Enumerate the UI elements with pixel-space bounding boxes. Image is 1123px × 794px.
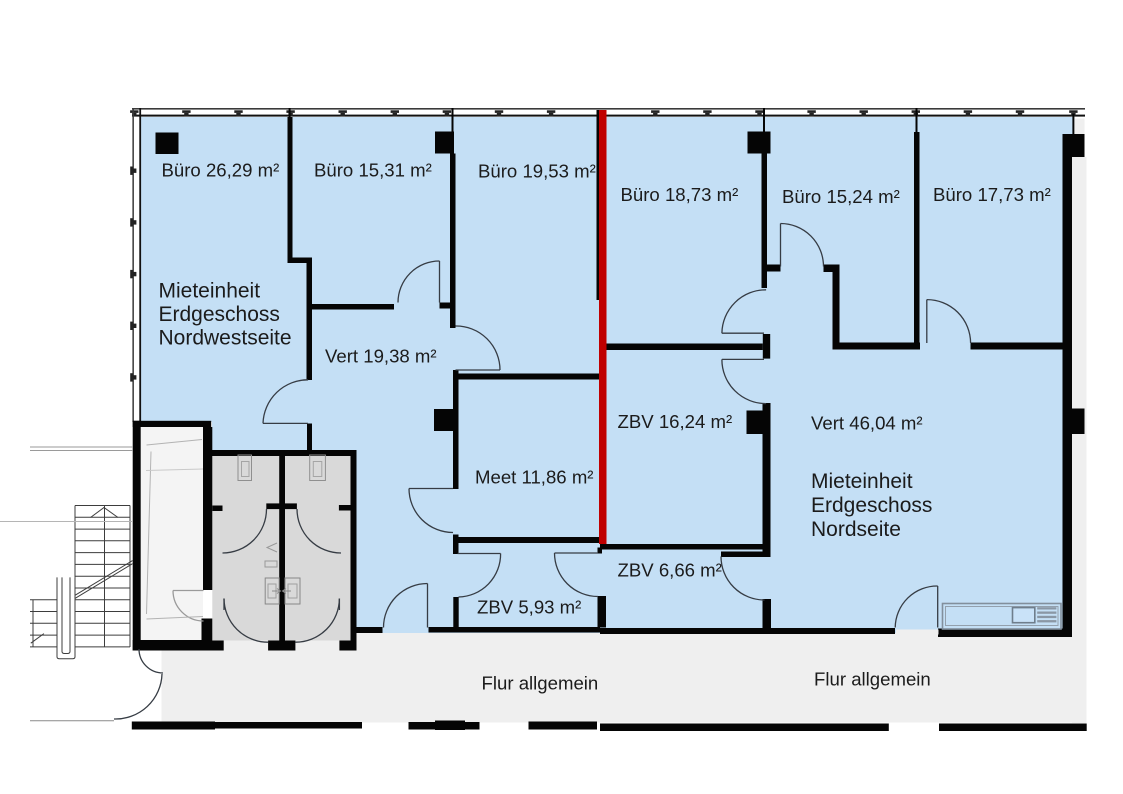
svg-text:Büro 19,53 m²: Büro 19,53 m²	[478, 161, 596, 182]
svg-text:Nordseite: Nordseite	[811, 518, 901, 541]
svg-text:Vert 46,04 m²: Vert 46,04 m²	[811, 413, 923, 434]
svg-text:Mieteinheit: Mieteinheit	[811, 470, 913, 493]
svg-text:Flur allgemein: Flur allgemein	[482, 673, 599, 694]
svg-text:Büro 18,73 m²: Büro 18,73 m²	[621, 184, 739, 205]
svg-text:Büro 17,73 m²: Büro 17,73 m²	[933, 184, 1051, 205]
svg-text:Büro 15,24 m²: Büro 15,24 m²	[782, 186, 900, 207]
svg-text:Mieteinheit: Mieteinheit	[159, 280, 261, 303]
svg-text:Büro 15,31 m²: Büro 15,31 m²	[314, 160, 432, 181]
svg-text:Erdgeschoss: Erdgeschoss	[159, 303, 280, 326]
svg-text:Nordwestseite: Nordwestseite	[159, 327, 292, 350]
svg-text:ZBV 5,93 m²: ZBV 5,93 m²	[477, 597, 581, 618]
svg-text:ZBV 16,24 m²: ZBV 16,24 m²	[618, 411, 733, 432]
svg-text:Flur allgemein: Flur allgemein	[814, 669, 931, 690]
svg-text:Vert 19,38 m²: Vert 19,38 m²	[325, 346, 437, 367]
svg-text:Erdgeschoss: Erdgeschoss	[811, 494, 932, 517]
svg-text:ZBV 6,66 m²: ZBV 6,66 m²	[618, 560, 722, 581]
svg-text:Büro 26,29 m²: Büro 26,29 m²	[162, 160, 280, 181]
svg-text:Meet 11,86 m²: Meet 11,86 m²	[475, 467, 594, 488]
